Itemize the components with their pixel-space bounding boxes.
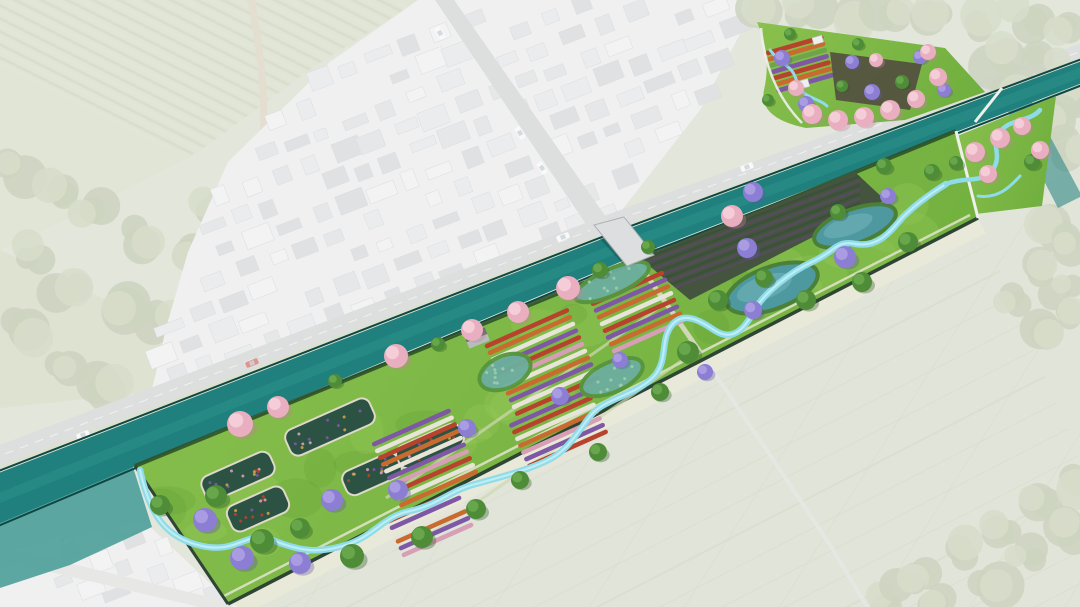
lawn-patch <box>304 449 336 488</box>
aerial-rendering <box>0 0 1080 607</box>
rendering-stage <box>0 0 1080 607</box>
